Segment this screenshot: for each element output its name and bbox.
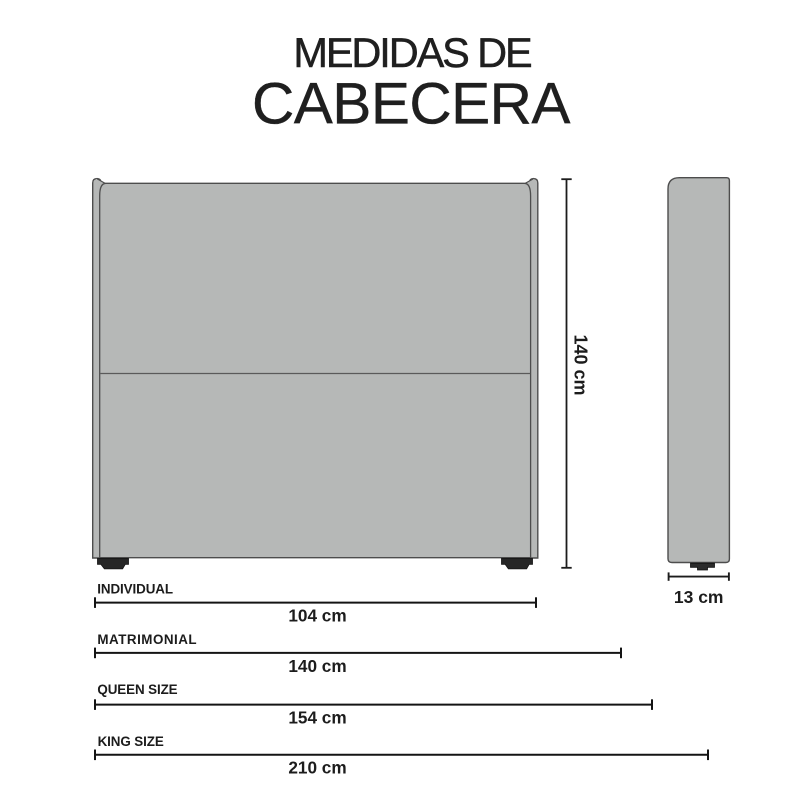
svg-text:140 cm: 140 cm	[288, 656, 346, 676]
svg-text:104 cm: 104 cm	[288, 606, 346, 626]
svg-text:210 cm: 210 cm	[288, 757, 346, 777]
svg-text:KING SIZE: KING SIZE	[98, 734, 164, 749]
svg-text:CABECERA: CABECERA	[252, 72, 570, 137]
svg-text:13 cm: 13 cm	[674, 587, 724, 607]
svg-text:MATRIMONIAL: MATRIMONIAL	[97, 632, 197, 647]
svg-text:MEDIDAS DE: MEDIDAS DE	[293, 29, 531, 76]
svg-text:QUEEN SIZE: QUEEN SIZE	[97, 682, 177, 697]
svg-text:INDIVIDUAL: INDIVIDUAL	[97, 582, 173, 597]
svg-text:140 cm: 140 cm	[570, 334, 590, 395]
svg-text:154 cm: 154 cm	[288, 708, 346, 728]
